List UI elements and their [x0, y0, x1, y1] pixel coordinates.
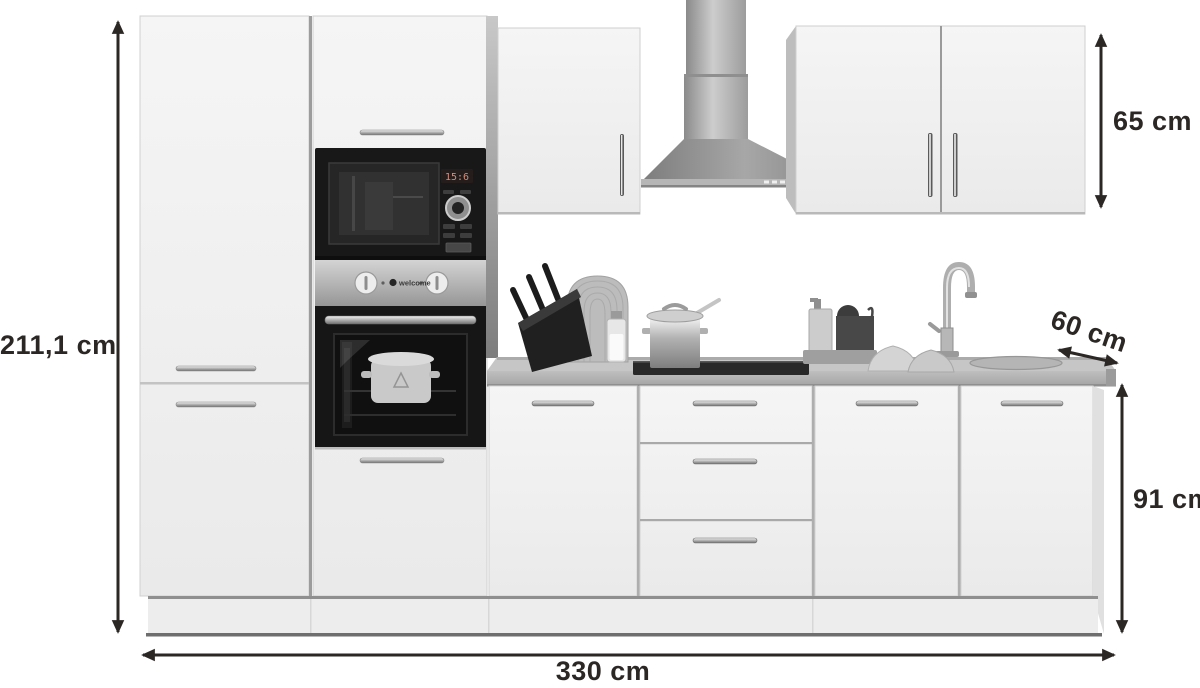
base-cabinet-door-right [961, 386, 1093, 596]
oven: welcome [315, 256, 486, 447]
wall-cabinet-right-handle-left [928, 133, 933, 197]
oven-handle [325, 316, 476, 324]
dimension-label-total-width: 330 cm [503, 657, 703, 687]
tall-cabinet [140, 16, 312, 596]
wall-cabinet-left [498, 28, 640, 215]
wall-cabinet-left-handle [620, 134, 624, 196]
wall-cabinet-right-handle-right [953, 133, 958, 197]
drawer-unit [640, 386, 812, 596]
casserole-in-oven [361, 352, 440, 403]
wall-cabinet-right-side-panel [786, 26, 796, 214]
microwave-display: 15:6 [445, 172, 469, 183]
dimension-label-base-unit-height: 91 cm [1133, 485, 1200, 515]
column-side-panel [486, 16, 498, 358]
plinth [146, 596, 1102, 637]
tall-cabinet-handle-upper [176, 366, 256, 371]
oven-knob-left [355, 272, 377, 294]
soap-dispenser [809, 298, 832, 353]
drawer-handle-2 [693, 459, 757, 464]
dish-brush [836, 305, 874, 356]
dimension-label-total-height: 211,1 cm [0, 331, 110, 361]
tall-cabinet-handle-lower [176, 402, 256, 407]
dimension-label-wall-unit-height: 65 cm [1113, 107, 1192, 137]
milk-bottle [607, 311, 626, 362]
sink [970, 357, 1062, 370]
oven-brand-text: welcome [398, 279, 431, 288]
product-image-kitchen: 15:6 [0, 0, 1200, 688]
sink-caddy-tray [803, 350, 877, 364]
drawer-handle-1 [693, 401, 757, 406]
oven-housing-column: 15:6 [313, 16, 498, 596]
faucet [930, 266, 977, 357]
wall-cabinet-right [786, 26, 1085, 215]
oven-window [334, 334, 467, 435]
base-cabinet-door-left [489, 386, 637, 596]
kitchen-render: 15:6 [0, 0, 1200, 688]
drawer-handle-3 [693, 538, 757, 543]
microwave-dial [446, 196, 470, 220]
microwave: 15:6 [315, 148, 486, 258]
column-top-door [360, 130, 444, 135]
base-cabinet-door-middle [815, 386, 958, 596]
